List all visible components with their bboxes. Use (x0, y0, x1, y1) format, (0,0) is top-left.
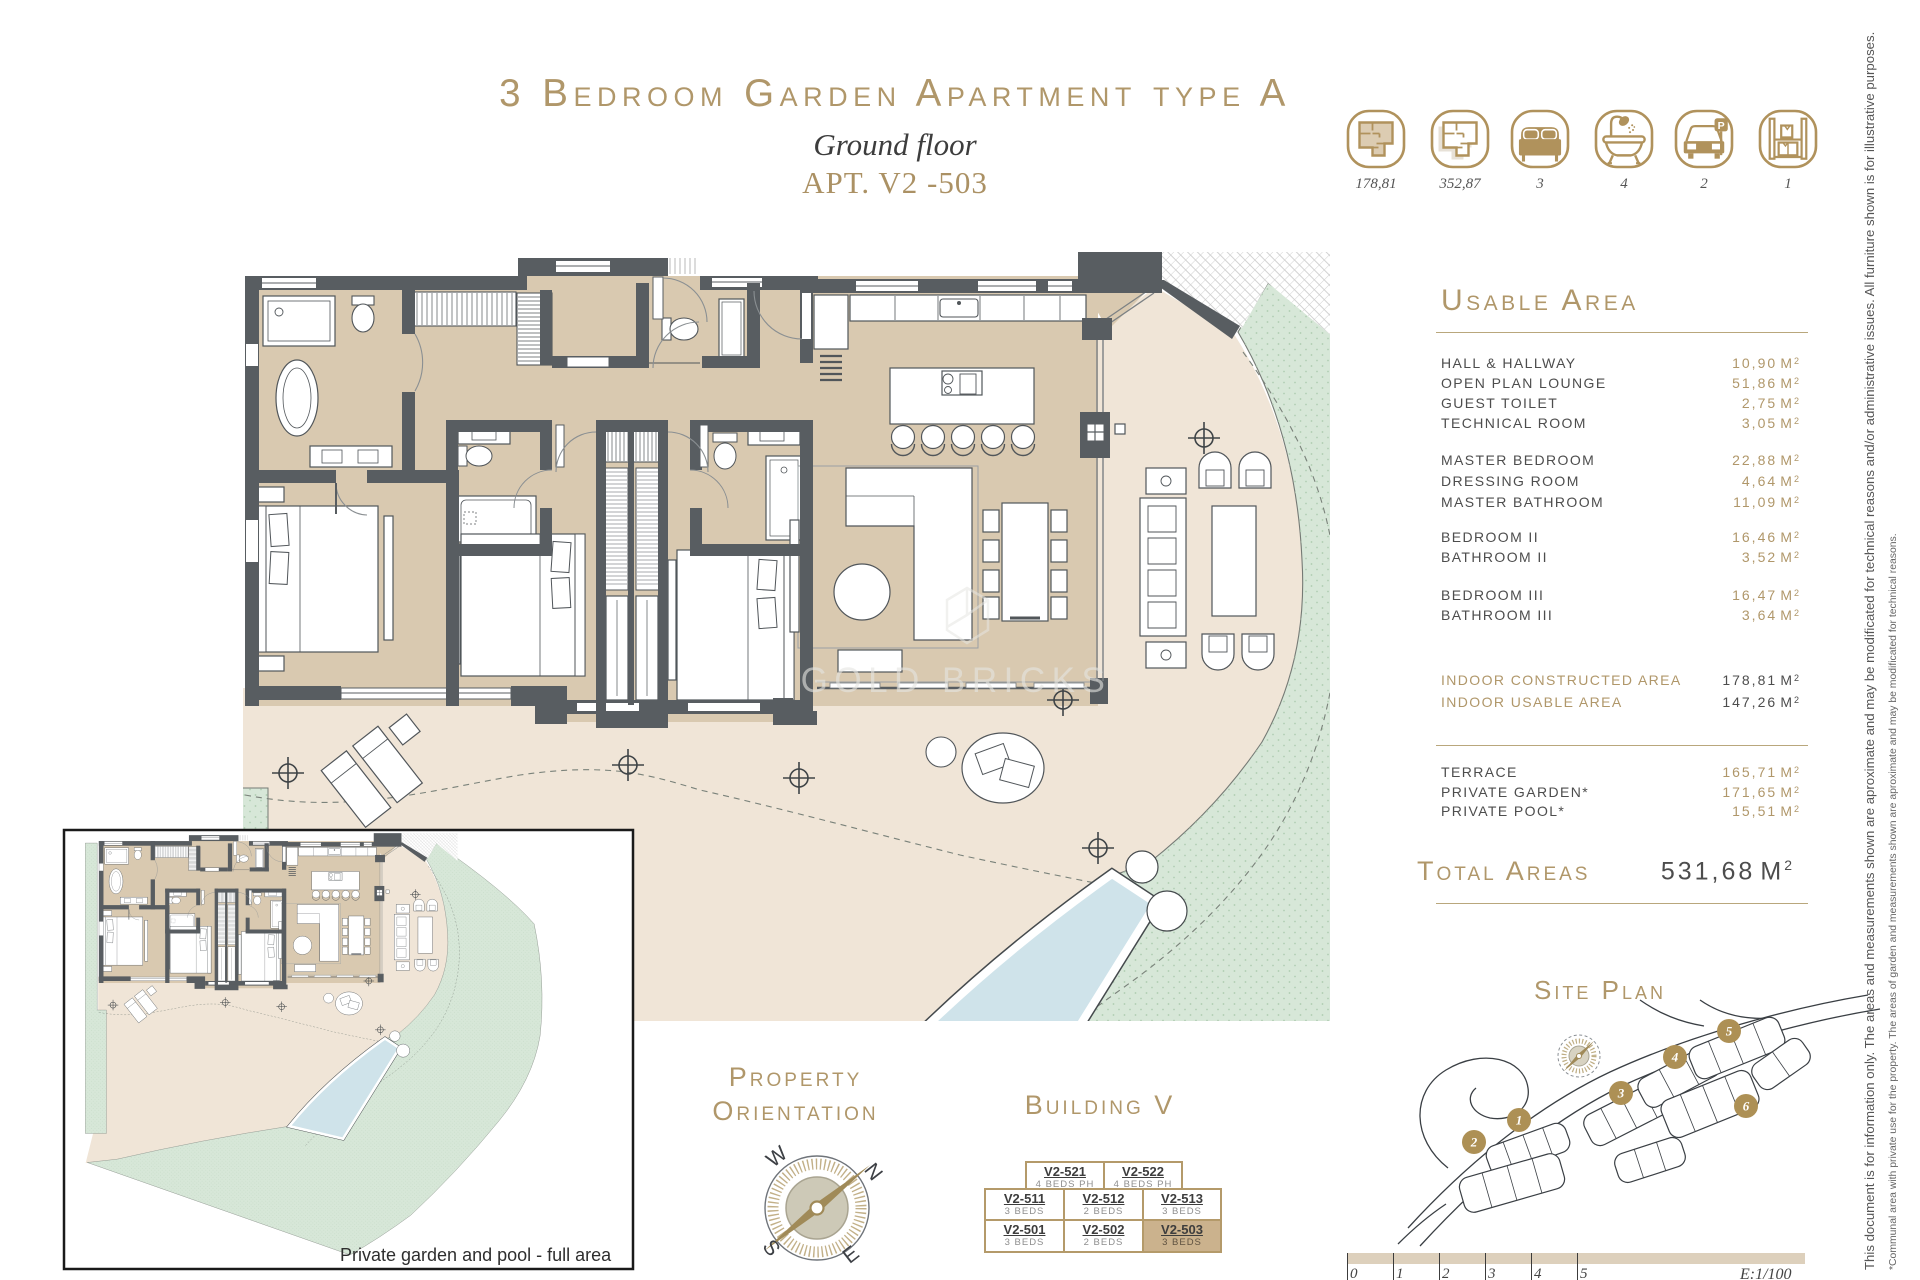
svg-text:GOLD BRICKS: GOLD BRICKS (801, 661, 1112, 700)
svg-text:2: 2 (1470, 1135, 1478, 1150)
svg-text:1: 1 (1516, 1113, 1523, 1128)
svg-text:N: N (859, 1159, 886, 1185)
svg-text:6: 6 (1743, 1099, 1750, 1114)
svg-text:4: 4 (1671, 1050, 1679, 1065)
svg-text:5: 5 (1726, 1024, 1733, 1039)
svg-text:W: W (762, 1142, 792, 1172)
svg-text:3: 3 (1617, 1086, 1625, 1101)
